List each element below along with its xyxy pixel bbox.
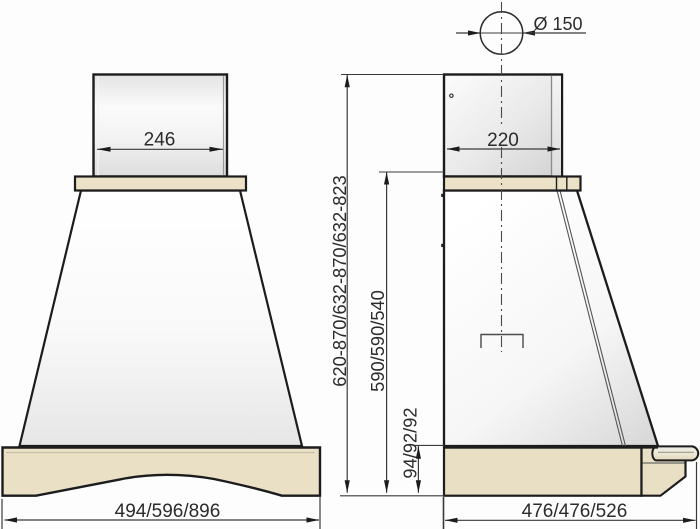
- svg-text:220: 220: [487, 130, 519, 151]
- svg-text:476/476/526: 476/476/526: [522, 501, 628, 522]
- svg-text:94/92/92: 94/92/92: [400, 407, 421, 478]
- svg-text:620-870/632-870/632-823: 620-870/632-870/632-823: [329, 175, 350, 386]
- svg-text:Ø 150: Ø 150: [533, 14, 582, 34]
- svg-text:590/590/540: 590/590/540: [367, 290, 388, 392]
- svg-text:246: 246: [144, 130, 176, 151]
- svg-text:494/596/896: 494/596/896: [115, 501, 221, 522]
